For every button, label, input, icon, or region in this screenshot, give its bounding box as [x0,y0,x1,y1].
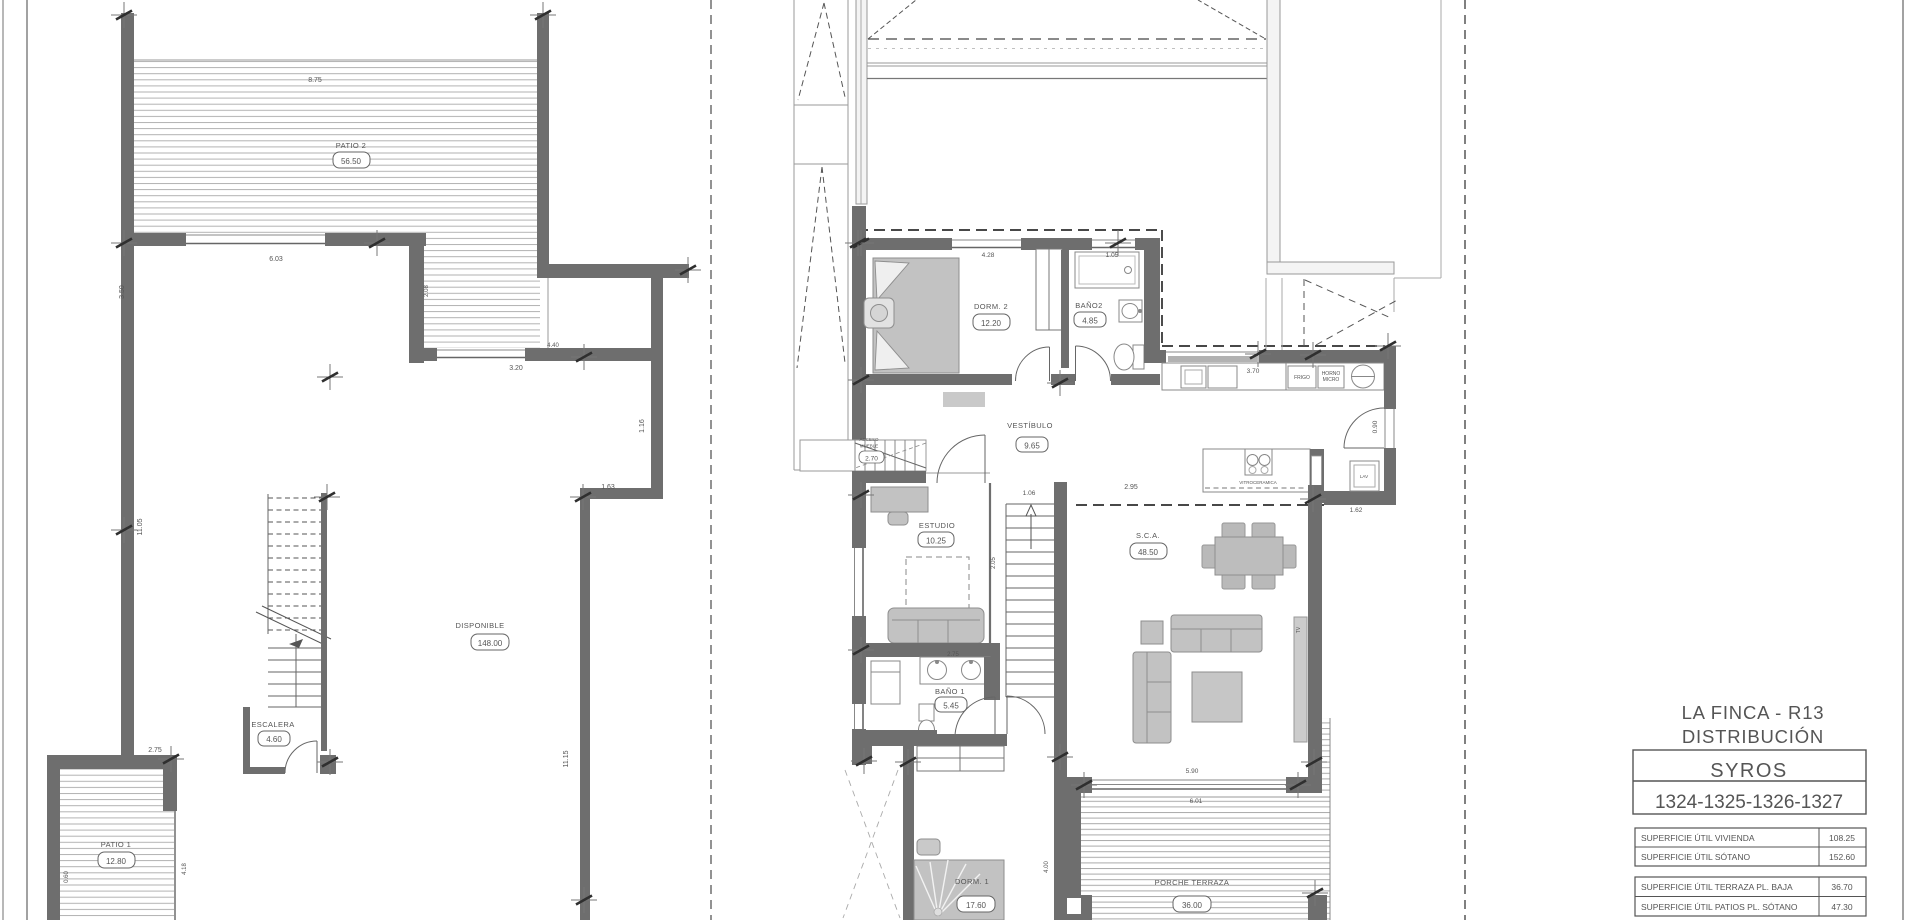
svg-text:4.85: 4.85 [1082,317,1098,326]
svg-text:FRIGO: FRIGO [1294,375,1310,381]
svg-text:S.C.A.: S.C.A. [1136,531,1160,540]
svg-text:1.05: 1.05 [1106,252,1119,259]
svg-text:TV: TV [1296,626,1302,633]
svg-text:9.65: 9.65 [1024,442,1040,451]
svg-text:1.62: 1.62 [1350,507,1363,514]
svg-text:SUPERFICIE ÚTIL VIVIENDA: SUPERFICIE ÚTIL VIVIENDA [1641,833,1755,843]
svg-text:0.90: 0.90 [1372,420,1379,433]
svg-text:3.70: 3.70 [1247,368,1260,375]
svg-text:DISTRIBUCIÓN: DISTRIBUCIÓN [1682,726,1824,747]
svg-text:6.01: 6.01 [1190,798,1203,805]
svg-text:ACCESO: ACCESO [859,437,879,442]
svg-text:2.70: 2.70 [865,456,878,463]
svg-text:4.60: 4.60 [266,735,282,744]
svg-text:ESCALERA: ESCALERA [251,720,294,729]
svg-text:SUPERFICIE ÚTIL TERRAZA PL. BA: SUPERFICIE ÚTIL TERRAZA PL. BAJA [1641,882,1793,892]
svg-text:DORM. 2: DORM. 2 [974,302,1008,311]
svg-text:8.75: 8.75 [308,77,322,84]
svg-text:VESTÍBULO: VESTÍBULO [1007,421,1053,430]
svg-text:48.50: 48.50 [1138,548,1159,557]
svg-text:12.20: 12.20 [981,319,1002,328]
svg-text:12.80: 12.80 [106,857,127,866]
svg-text:4.00: 4.00 [1044,861,1050,873]
svg-text:MUEBLE: MUEBLE [860,444,879,449]
svg-text:PATIO 1: PATIO 1 [101,840,131,849]
svg-text:2.75: 2.75 [148,747,162,754]
svg-text:PATIO 2: PATIO 2 [336,141,366,150]
svg-text:148.00: 148.00 [478,639,503,648]
svg-text:2.08: 2.08 [424,285,430,297]
svg-text:1.63: 1.63 [601,484,615,491]
svg-text:5.90: 5.90 [1186,768,1199,775]
svg-text:4.40: 4.40 [547,343,559,349]
svg-text:4.28: 4.28 [982,252,995,259]
svg-text:PORCHE TERRAZA: PORCHE TERRAZA [1155,878,1230,887]
svg-text:MICRO: MICRO [1323,377,1340,383]
svg-text:3.50: 3.50 [119,285,126,299]
svg-text:152.60: 152.60 [1829,852,1855,862]
svg-text:11.15: 11.15 [563,750,570,767]
svg-text:108.25: 108.25 [1829,833,1855,843]
svg-text:5.45: 5.45 [943,702,959,711]
svg-text:SUPERFICIE ÚTIL SÓTANO: SUPERFICIE ÚTIL SÓTANO [1641,852,1750,862]
svg-text:36.70: 36.70 [1831,882,1853,892]
svg-text:47.30: 47.30 [1831,902,1853,912]
svg-text:11.05: 11.05 [137,518,144,535]
svg-text:0.60: 0.60 [64,871,70,883]
svg-text:17.60: 17.60 [966,901,987,910]
svg-text:3.20: 3.20 [509,365,523,372]
svg-text:1.16: 1.16 [639,419,646,433]
svg-text:ESTUDIO: ESTUDIO [919,521,955,530]
svg-text:2.75: 2.75 [947,652,959,658]
svg-text:LA FINCA - R13: LA FINCA - R13 [1682,702,1825,723]
svg-text:BAÑO2: BAÑO2 [1075,301,1102,310]
svg-text:LAV: LAV [1360,474,1368,479]
svg-text:10.25: 10.25 [926,537,947,546]
svg-text:2.95: 2.95 [1124,484,1138,491]
svg-text:1324-1325-1326-1327: 1324-1325-1326-1327 [1655,792,1843,813]
svg-text:DORM. 1: DORM. 1 [955,877,989,886]
svg-text:1.06: 1.06 [1023,490,1036,497]
svg-text:36.00: 36.00 [1182,901,1203,910]
svg-text:2.05: 2.05 [991,557,997,569]
svg-text:SUPERFICIE ÚTIL PATIOS PL. SÓT: SUPERFICIE ÚTIL PATIOS PL. SÓTANO [1641,902,1798,912]
svg-text:BAÑO 1: BAÑO 1 [935,687,965,696]
svg-text:SYROS: SYROS [1710,760,1788,782]
svg-text:4.18: 4.18 [182,863,188,875]
svg-text:VITROCERAMICA: VITROCERAMICA [1239,480,1277,485]
svg-text:56.50: 56.50 [341,157,362,166]
svg-text:6.03: 6.03 [269,256,283,263]
svg-text:DISPONIBLE: DISPONIBLE [455,621,504,630]
